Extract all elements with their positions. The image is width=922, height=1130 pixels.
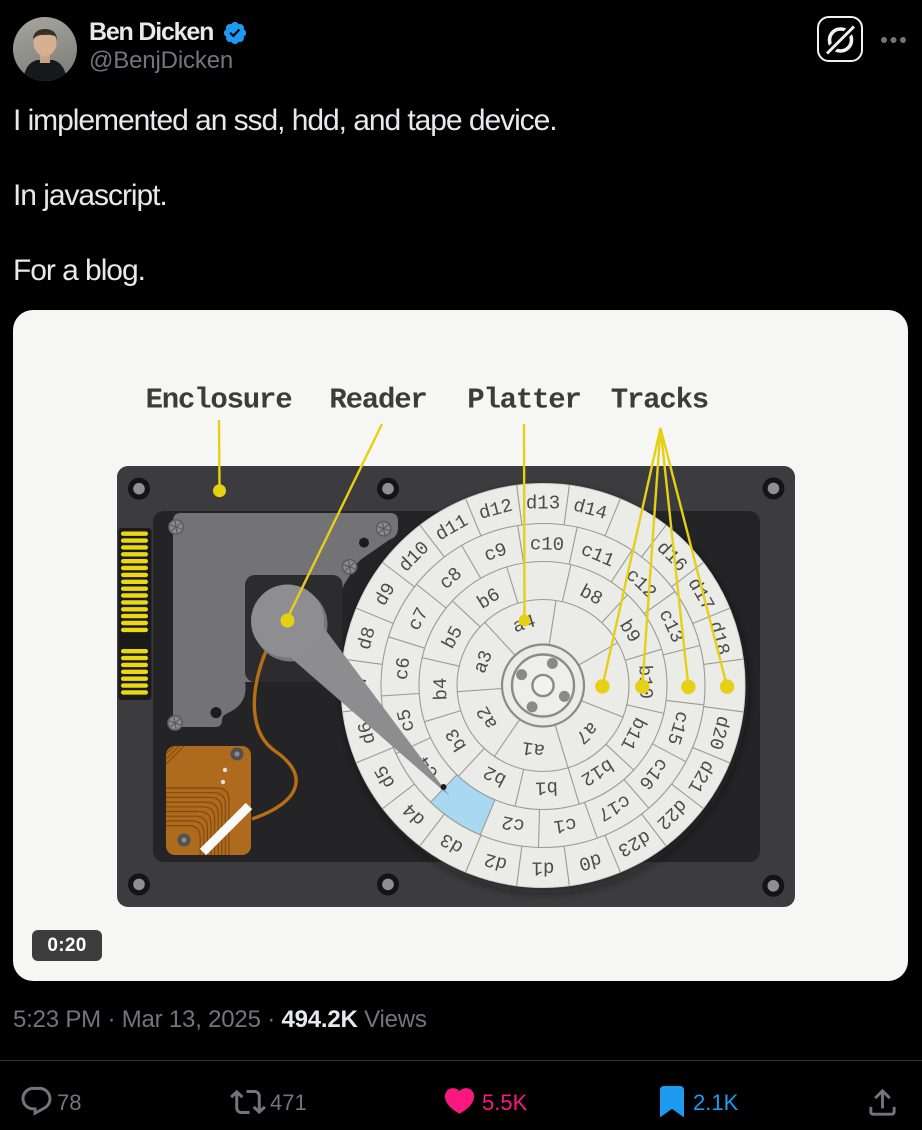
svg-text:c10: c10 (530, 533, 565, 556)
svg-text:a1: a1 (520, 736, 546, 761)
svg-text:d1: d1 (532, 857, 555, 879)
svg-text:c6: c6 (391, 656, 416, 681)
svg-text:Platter: Platter (467, 384, 580, 417)
svg-text:c1: c1 (552, 812, 578, 837)
svg-text:c2: c2 (500, 810, 527, 836)
svg-text:b1: b1 (535, 776, 559, 799)
svg-text:d13: d13 (526, 493, 560, 515)
svg-text:Tracks: Tracks (611, 384, 708, 417)
svg-text:Reader: Reader (329, 384, 426, 417)
svg-text:Enclosure: Enclosure (146, 384, 292, 417)
svg-text:b4: b4 (430, 677, 453, 701)
